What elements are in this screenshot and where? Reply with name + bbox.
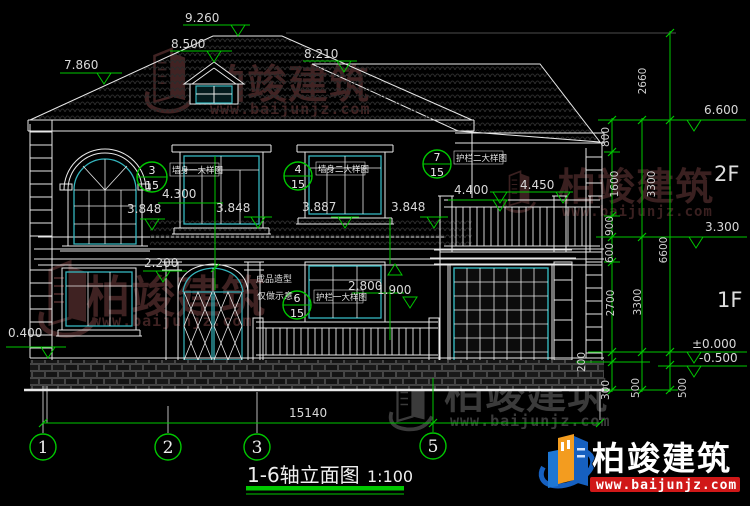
callout-label: 墙身一大样图 — [172, 165, 223, 176]
elevation-mark-value: 4.300 — [162, 187, 196, 201]
logo-window-slit — [577, 455, 585, 458]
elevation-mark-value: 1.900 — [377, 283, 411, 297]
floor-label-1f: 1F — [717, 288, 742, 312]
elevation-mark-value: 0.400 — [8, 326, 42, 340]
callout-number: 6 — [294, 292, 301, 305]
chain-dim-value: 600 — [604, 243, 616, 263]
logo-building-blue — [574, 436, 588, 486]
note-text: 成品造型 — [256, 273, 292, 285]
chain-dim-value: 500 — [677, 378, 689, 398]
chain-dim-value: 6600 — [658, 237, 670, 264]
chain-dim-value: 200 — [576, 352, 588, 372]
chain-dim-value: 900 — [604, 216, 616, 236]
drawing-title: 1-6轴立面图 — [247, 463, 360, 487]
callout-denominator: 15 — [145, 179, 159, 192]
logo-window-slit — [567, 440, 570, 449]
site-logo: 柏竣建筑 www.baijunjz.com — [536, 434, 740, 493]
elevation-mark-value: 3.848 — [216, 201, 250, 215]
logo-brand-text: 柏竣建筑 — [592, 439, 732, 478]
callout-number: 3 — [149, 164, 156, 177]
elevation-mark-value: ±0.000 — [692, 337, 736, 351]
callout-number: 4 — [295, 163, 302, 176]
elevation-mark-value: 2.200 — [144, 256, 178, 270]
chain-dim-value: 3300 — [646, 171, 658, 198]
chain-dim-value: 1600 — [609, 171, 621, 198]
elevation-drawing-canvas: 柏竣建筑 www.baijunjz.com 柏竣建筑 www.baijunjz.… — [0, 0, 750, 506]
total-width-dim: 15140 — [289, 406, 327, 420]
callout-number: 7 — [434, 151, 441, 164]
elevation-mark-value: 8.210 — [304, 47, 338, 61]
elevation-mark-value: 4.450 — [520, 178, 554, 192]
elevation-mark-value: 3.300 — [705, 220, 739, 234]
chain-dim-value: 800 — [600, 127, 612, 147]
watermark-brand: 柏竣建筑 — [558, 165, 714, 209]
axis-number: 5 — [428, 437, 439, 457]
chain-dim-value: 300 — [600, 380, 612, 400]
note-text: 仅做示意 — [257, 290, 293, 302]
arched-window-2f — [60, 149, 150, 251]
callout-label: 护栏一大样图 — [316, 292, 367, 303]
floor-label-2f: 2F — [714, 162, 739, 186]
axis-number: 3 — [252, 438, 263, 458]
elevation-mark-value: 3.848 — [391, 200, 425, 214]
elevation-mark-value: 3.848 — [127, 202, 161, 216]
axis-number: 2 — [163, 438, 174, 458]
logo-url-text: www.baijunjz.com — [596, 478, 737, 493]
axis-number: 1 — [38, 438, 49, 458]
watermark-url: www.baijunjz.com — [562, 204, 713, 220]
callout-denominator: 15 — [291, 178, 305, 191]
elevation-mark-value: -0.500 — [699, 351, 738, 365]
logo-building-left — [548, 450, 558, 488]
elevation-mark-value: 8.500 — [171, 37, 205, 51]
logo-building-orange — [558, 434, 574, 484]
cad-elevation-screenshot: 柏竣建筑 www.baijunjz.com 柏竣建筑 www.baijunjz.… — [0, 0, 750, 506]
callout-denominator: 15 — [430, 166, 444, 179]
elevation-mark-value: 3.887 — [302, 200, 336, 214]
callout-denominator: 15 — [290, 307, 304, 320]
chain-dim-value: 2660 — [637, 68, 649, 95]
logo-window-slit — [577, 448, 585, 451]
chain-dim-value: 3300 — [632, 289, 644, 316]
elevation-mark-value: 9.260 — [185, 11, 219, 25]
watermark-url: www.baijunjz.com — [450, 412, 611, 430]
chain-dim-value: 2700 — [605, 290, 617, 317]
chain-dim-value: 500 — [630, 378, 642, 398]
callout-label: 墙身二大样图 — [318, 164, 369, 175]
stone-plinth — [30, 360, 604, 389]
drawing-scale: 1:100 — [367, 467, 413, 486]
callout-label: 护栏二大样图 — [456, 153, 507, 164]
elevation-mark-value: 7.860 — [64, 58, 98, 72]
logo-window-slit — [561, 442, 564, 451]
elevation-mark-value: 6.600 — [704, 103, 738, 117]
elevation-mark-value: 4.400 — [454, 183, 488, 197]
